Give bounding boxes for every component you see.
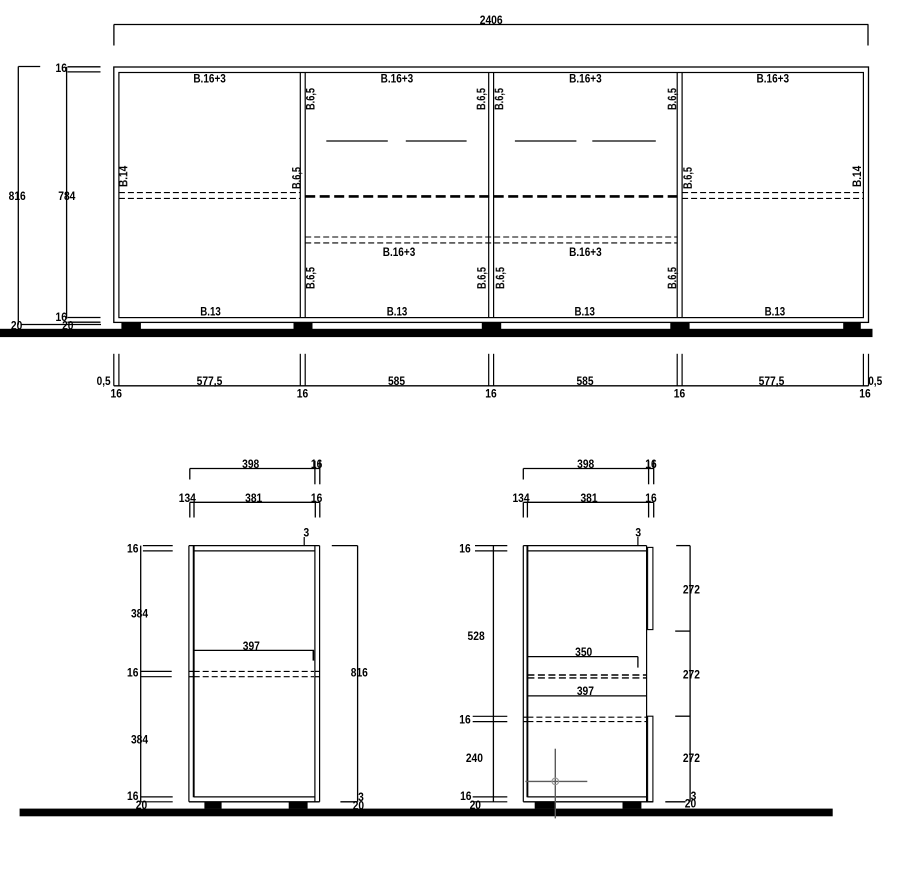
svg-text:B.16+3: B.16+3 [569, 245, 602, 259]
svg-text:272: 272 [683, 583, 700, 597]
svg-text:16: 16 [674, 387, 686, 401]
svg-text:577,5: 577,5 [759, 374, 785, 388]
svg-text:16: 16 [297, 387, 309, 401]
svg-text:B.6,5: B.6,5 [665, 267, 679, 289]
svg-text:134: 134 [512, 491, 529, 505]
svg-text:16: 16 [111, 387, 123, 401]
svg-text:16: 16 [459, 542, 471, 556]
svg-text:2406: 2406 [480, 13, 503, 27]
svg-text:B.6,5: B.6,5 [475, 267, 489, 289]
svg-text:16: 16 [459, 712, 471, 726]
svg-text:B.13: B.13 [200, 304, 221, 318]
svg-text:B.6,5: B.6,5 [290, 167, 304, 189]
svg-text:B.16+3: B.16+3 [383, 245, 416, 259]
svg-text:16: 16 [645, 457, 657, 471]
svg-text:16: 16 [127, 665, 139, 679]
svg-text:16: 16 [311, 457, 323, 471]
svg-text:398: 398 [242, 457, 259, 471]
svg-text:B.16+3: B.16+3 [757, 72, 790, 86]
svg-text:585: 585 [388, 374, 405, 388]
svg-text:B.14: B.14 [850, 166, 864, 187]
svg-text:240: 240 [466, 751, 483, 765]
svg-text:20: 20 [685, 797, 697, 811]
svg-text:16: 16 [485, 387, 497, 401]
svg-text:0,5: 0,5 [97, 374, 111, 388]
svg-text:397: 397 [243, 639, 260, 653]
svg-text:B.6,5: B.6,5 [492, 88, 506, 110]
svg-text:16: 16 [859, 387, 871, 401]
svg-text:B.6,5: B.6,5 [304, 267, 318, 289]
svg-text:16: 16 [645, 491, 657, 505]
svg-text:381: 381 [245, 491, 262, 505]
svg-text:350: 350 [575, 645, 592, 659]
svg-text:384: 384 [131, 607, 148, 621]
svg-text:16: 16 [56, 61, 68, 75]
svg-text:272: 272 [683, 668, 700, 682]
svg-text:384: 384 [131, 732, 148, 746]
svg-text:816: 816 [9, 189, 26, 203]
svg-text:B.13: B.13 [765, 304, 786, 318]
svg-text:398: 398 [577, 457, 594, 471]
svg-text:134: 134 [179, 491, 196, 505]
svg-text:B.6,5: B.6,5 [665, 88, 679, 110]
svg-text:577,5: 577,5 [197, 374, 223, 388]
svg-text:16: 16 [311, 491, 323, 505]
svg-text:784: 784 [58, 189, 75, 203]
svg-text:B.14: B.14 [116, 166, 130, 187]
svg-text:B.6,5: B.6,5 [474, 88, 488, 110]
svg-text:B.16+3: B.16+3 [193, 72, 226, 86]
svg-text:B.6,5: B.6,5 [681, 167, 695, 189]
svg-text:B.16+3: B.16+3 [381, 72, 414, 86]
svg-text:B.16+3: B.16+3 [569, 72, 602, 86]
svg-text:397: 397 [577, 684, 594, 698]
svg-text:816: 816 [351, 665, 368, 679]
svg-text:528: 528 [468, 629, 485, 643]
svg-text:B.13: B.13 [574, 304, 595, 318]
svg-text:16: 16 [127, 542, 139, 556]
svg-text:B.6,5: B.6,5 [304, 88, 318, 110]
svg-text:272: 272 [683, 751, 700, 765]
svg-text:B.13: B.13 [387, 304, 408, 318]
svg-text:381: 381 [580, 491, 597, 505]
svg-text:B.6,5: B.6,5 [493, 267, 507, 289]
svg-text:585: 585 [576, 374, 593, 388]
